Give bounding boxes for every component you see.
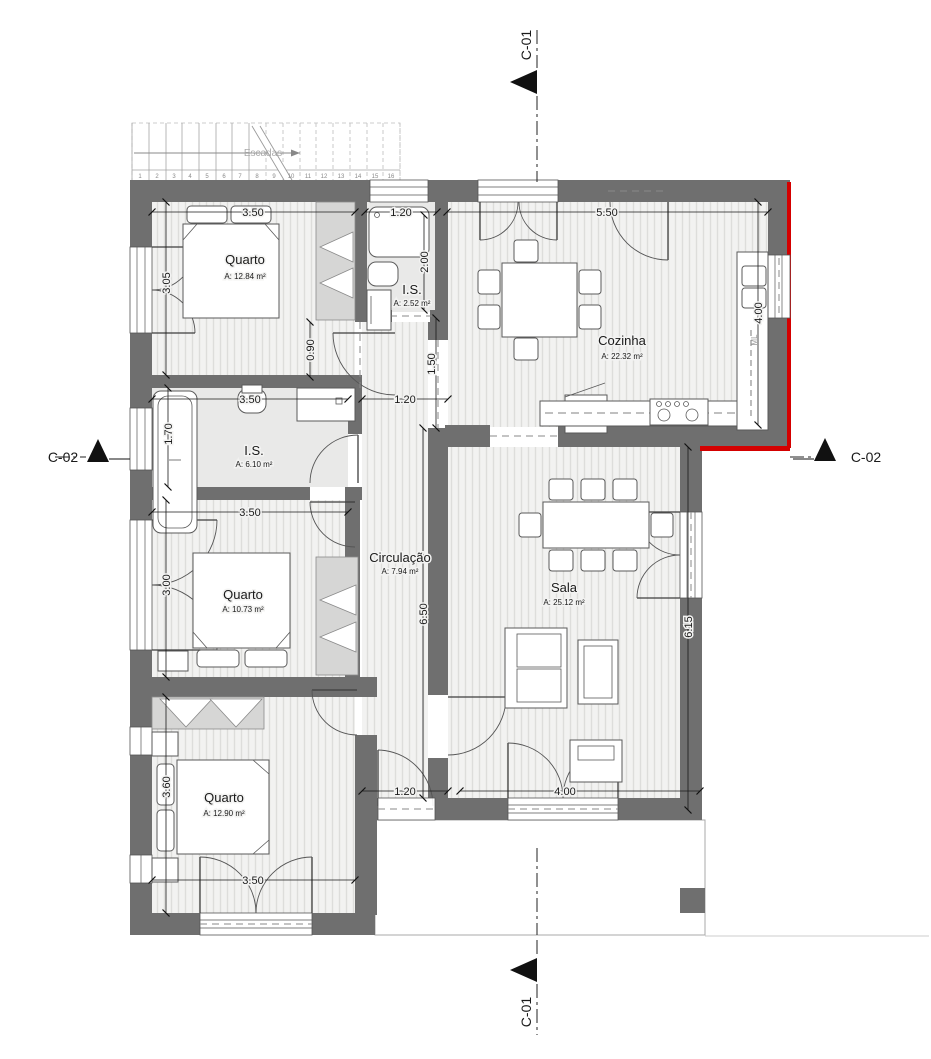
room-name-quarto2: Quarto [223, 587, 263, 602]
sink-is-small [367, 290, 391, 330]
section-arrow-c01-top [510, 70, 537, 94]
section-label-c02-left: C-02 [48, 449, 79, 465]
dim-nook-depth: 0.90 [305, 339, 317, 360]
room-name-quarto3: Quarto [204, 790, 244, 805]
stair-number: 8 [255, 174, 259, 180]
wardrobe-quarto3 [152, 697, 264, 729]
window-is-main-left [130, 408, 152, 470]
dim-circ-length: 6.50 [418, 603, 430, 624]
room-area-quarto1: A: 12.84 m² [224, 272, 266, 281]
floor-plan-canvas: Escadas 1 2 3 4 5 6 7 8 9 10 11 12 13 14… [0, 0, 931, 1059]
room-area-cozinha: A: 22.32 m² [601, 352, 643, 361]
stair-number: 11 [305, 174, 312, 180]
room-name-circulacao: Circulação [369, 550, 430, 565]
room-area-is-main: A: 6.10 m² [236, 460, 273, 469]
sofa [505, 628, 618, 708]
toilet-is-small [368, 262, 398, 286]
glazed-door-kitchen-top [478, 180, 558, 202]
stairs-numbers: 1 2 3 4 5 6 7 8 9 10 11 12 13 14 15 16 [138, 174, 395, 180]
room-name-sala: Sala [551, 580, 578, 595]
kitchen-sink [742, 266, 766, 286]
window-is-small-top [370, 180, 428, 202]
stairs: Escadas 1 2 3 4 5 6 7 8 9 10 11 12 13 14… [132, 123, 400, 182]
section-arrow-c02-left [87, 439, 109, 462]
stair-number: 13 [338, 174, 345, 180]
stairs-label: Escadas [244, 148, 282, 159]
stair-number: 1 [138, 174, 142, 180]
dim-q2-height: 3.00 [161, 574, 173, 595]
stair-number: 9 [272, 174, 276, 180]
section-arrow-c02-right [814, 438, 836, 461]
wardrobe-quarto1 [316, 202, 355, 320]
room-area-circulacao: A: 7.94 m² [382, 567, 419, 576]
room-name-is-main: I.S. [244, 443, 264, 458]
dim-terrace-door: 1.20 [394, 786, 415, 798]
kitchen-counter-bottom [540, 399, 768, 426]
floor-plan-drawing: Escadas 1 2 3 4 5 6 7 8 9 10 11 12 13 14… [0, 0, 931, 1059]
stair-number: 14 [355, 174, 362, 180]
stair-number: 2 [155, 174, 159, 180]
dim-sala-width: 4.00 [554, 786, 575, 798]
section-label-c02-right: C-02 [851, 449, 882, 465]
room-name-is-small: I.S. [402, 282, 422, 297]
dim-is2-width: 3.50 [239, 394, 260, 406]
vanity-is-main [297, 388, 355, 421]
room-area-quarto3: A: 12.90 m² [203, 809, 245, 818]
wardrobe-quarto2 [316, 557, 358, 675]
room-area-sala: A: 25.12 m² [543, 598, 585, 607]
dim-q1-width: 3.50 [242, 207, 263, 219]
dim-is1-width: 1.20 [390, 207, 411, 219]
stair-number: 16 [388, 174, 395, 180]
stair-number: 15 [372, 174, 379, 180]
stair-number: 4 [188, 174, 192, 180]
dim-is1-depth: 2.00 [419, 251, 431, 272]
dim-hall-top: 1.50 [426, 353, 438, 374]
stairs-direction-arrow [291, 150, 300, 157]
dim-q3-width: 3.50 [242, 875, 263, 887]
stair-number: 10 [288, 174, 295, 180]
window-quarto3-left-b [130, 855, 152, 883]
stair-number: 12 [321, 174, 328, 180]
terrace [375, 820, 705, 935]
kitchen-counter-right: ML [737, 252, 768, 430]
section-arrow-c01-bottom [510, 958, 537, 982]
tv-unit [570, 740, 622, 782]
section-label-c01-bottom: C-01 [518, 997, 534, 1028]
dim-q1-height: 3.05 [161, 272, 173, 293]
room-area-quarto2: A: 10.73 m² [222, 605, 264, 614]
room-name-quarto1: Quarto [225, 252, 265, 267]
dim-is2-depth: 1.70 [163, 423, 175, 444]
dim-kitchen-width: 5.50 [596, 207, 617, 219]
red-wall-line [700, 446, 790, 451]
room-area-is-small: A: 2.52 m² [394, 299, 431, 308]
window-quarto3-left-a [130, 727, 152, 755]
stair-number: 6 [222, 174, 226, 180]
dim-hall-door: 1.20 [394, 394, 415, 406]
dim-sala-depth: 6.15 [683, 616, 695, 637]
section-label-c01-top: C-01 [518, 30, 534, 61]
stair-number: 3 [172, 174, 176, 180]
dim-q3-height: 3.60 [161, 776, 173, 797]
dim-kitchen-depth: 4.00 [753, 302, 765, 323]
dim-q2-width: 3.50 [239, 507, 260, 519]
room-name-cozinha: Cozinha [598, 333, 646, 348]
stair-number: 7 [238, 174, 242, 180]
terrace-pillar [680, 888, 705, 913]
stair-number: 5 [205, 174, 209, 180]
